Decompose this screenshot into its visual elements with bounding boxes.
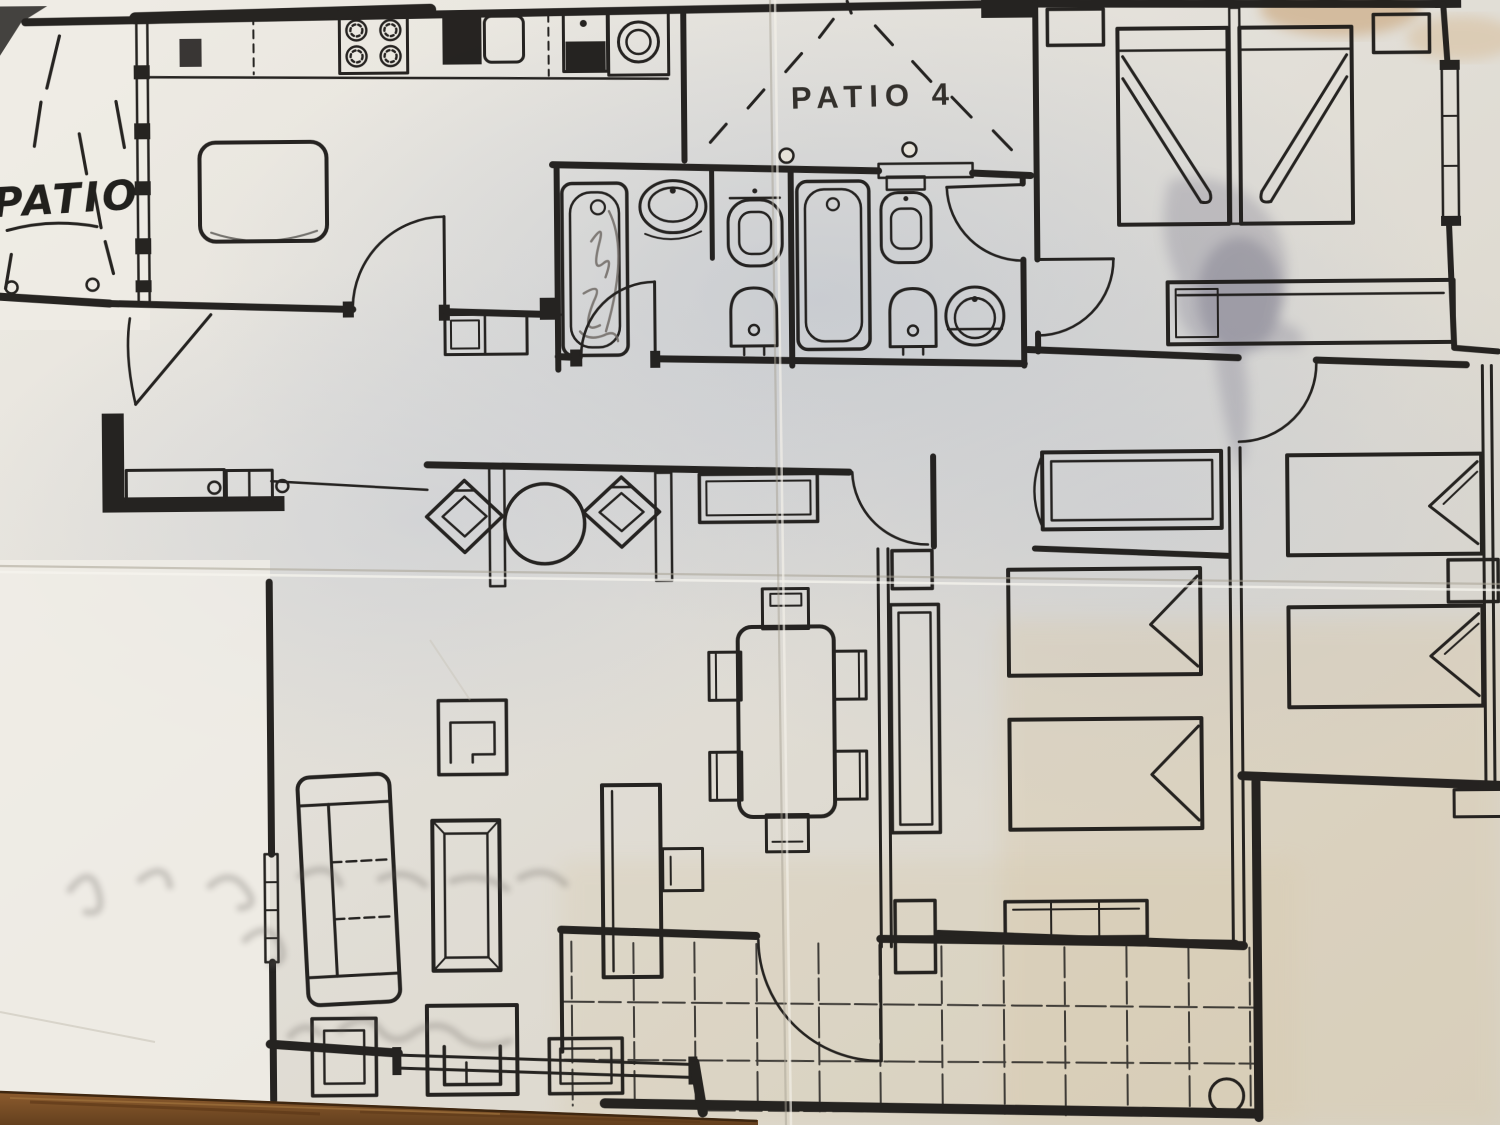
entry-wall-block — [102, 413, 125, 511]
terrace-door-leaf — [880, 941, 881, 1061]
kitchen-door-leaf — [444, 217, 445, 307]
patio-label: PATIO — [0, 170, 141, 227]
paper-blank-left — [0, 560, 270, 1125]
vent-circle — [902, 143, 916, 157]
bedroom1-door-leaf — [1037, 259, 1113, 260]
floor-plan-photo: PATIO — [0, 0, 1500, 1125]
vent-circle — [779, 149, 793, 163]
window-block-top — [981, 0, 1037, 18]
bathroom1-door-leaf — [655, 282, 656, 356]
paper-patio-light — [0, 0, 150, 330]
